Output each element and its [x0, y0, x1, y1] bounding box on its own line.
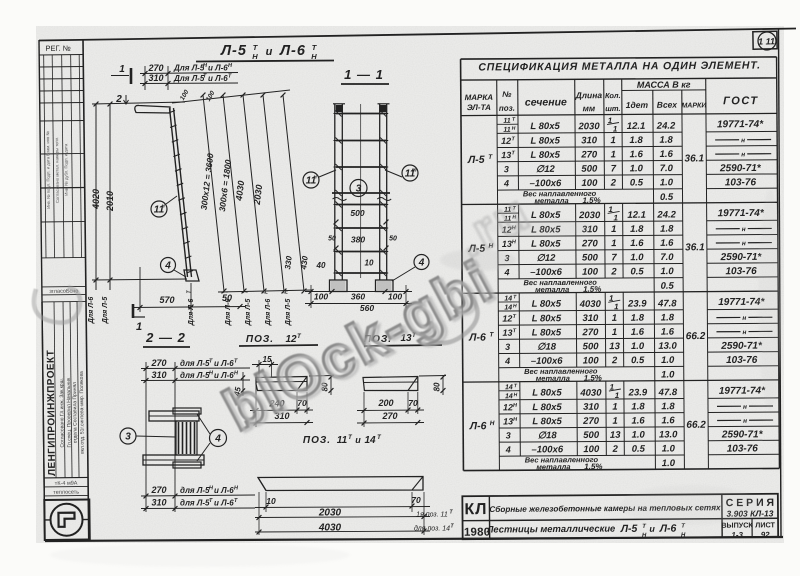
svg-text:для Л-5: для Л-5 [180, 359, 210, 368]
svg-text:1.5%: 1.5% [584, 462, 602, 471]
svg-text:для Л-5: для Л-5 [180, 486, 210, 495]
svg-text:отдела Составила Принял: отдела Составила Принял [72, 382, 79, 444]
svg-text:1.8: 1.8 [629, 135, 643, 146]
svg-text:500: 500 [582, 252, 599, 263]
svg-text:70: 70 [408, 398, 418, 408]
svg-text:11: 11 [503, 127, 510, 134]
svg-text:12: 12 [501, 136, 511, 146]
svg-text:Н: Н [514, 392, 518, 398]
svg-text:103-76: 103-76 [725, 177, 757, 188]
svg-text:360: 360 [351, 292, 365, 302]
svg-text:12.1: 12.1 [627, 210, 646, 221]
svg-text:и Л-6: и Л-6 [208, 74, 228, 83]
svg-text:сечение: сечение [525, 96, 567, 108]
svg-text:Н: Н [642, 533, 647, 539]
svg-text:и: и [649, 524, 655, 534]
svg-text:L 80х5: L 80х5 [530, 136, 560, 147]
svg-text:1.0: 1.0 [631, 341, 645, 352]
svg-text:Н: Н [512, 126, 516, 132]
svg-text:310: 310 [582, 313, 599, 324]
svg-text:270: 270 [150, 485, 166, 495]
svg-text:МАРКИ: МАРКИ [681, 102, 707, 109]
svg-text:металла: металла [536, 462, 570, 471]
svg-text:–100х6: –100х6 [531, 444, 563, 455]
svg-text:330: 330 [283, 255, 294, 270]
svg-text:1: 1 [611, 149, 616, 160]
svg-text:Для Л-6: Для Л-6 [188, 299, 195, 327]
svg-text:2590-71*: 2590-71* [720, 252, 763, 263]
svg-text:1.0: 1.0 [660, 266, 674, 277]
svg-text:ГОСТ: ГОСТ [723, 95, 759, 107]
svg-text:100: 100 [583, 355, 600, 366]
svg-text:14: 14 [504, 295, 512, 302]
svg-text:н: н [742, 240, 746, 247]
svg-text:теплосеть: теплосеть [53, 490, 79, 496]
svg-text:1: 1 [613, 125, 618, 134]
svg-text:1.8: 1.8 [661, 401, 675, 412]
svg-text:7: 7 [611, 163, 617, 174]
svg-text:для поз. 14: для поз. 14 [414, 525, 450, 533]
svg-text:ПОЗ.: ПОЗ. [246, 334, 274, 345]
svg-text:L 80х5: L 80х5 [532, 416, 562, 427]
svg-text:∅18: ∅18 [537, 342, 557, 353]
svg-text:270: 270 [581, 238, 599, 249]
svg-text:50: 50 [328, 236, 336, 243]
svg-text:7: 7 [611, 252, 617, 263]
svg-text:L 80х5: L 80х5 [532, 402, 562, 413]
svg-text:310: 310 [151, 370, 166, 380]
svg-text:н: н [743, 418, 747, 425]
svg-text:1: 1 [613, 213, 618, 222]
svg-text:36.1: 36.1 [685, 242, 705, 253]
svg-text:7.0: 7.0 [660, 252, 674, 263]
svg-text:Н: Н [513, 303, 517, 309]
svg-text:4030: 4030 [579, 388, 602, 399]
svg-text:500: 500 [581, 164, 598, 175]
svg-text:2030: 2030 [318, 508, 342, 519]
svg-text:50: 50 [222, 293, 232, 303]
svg-text:–100х6: –100х6 [531, 356, 563, 367]
svg-text:13: 13 [610, 430, 621, 441]
svg-text:–100х6: –100х6 [530, 178, 562, 189]
svg-text:36.1: 36.1 [684, 153, 704, 164]
svg-text:1.6: 1.6 [660, 238, 674, 249]
svg-text:1: 1 [612, 327, 617, 338]
svg-text:СПЕЦИФИКАЦИЯ МЕТАЛЛА НА ОД: СПЕЦИФИКАЦИЯ МЕТАЛЛА НА ОДИН ЭЛЕМЕНТ. [478, 60, 761, 74]
svg-text:н: н [741, 137, 745, 144]
svg-text:1.8: 1.8 [630, 224, 644, 235]
svg-text:L 80х5: L 80х5 [532, 387, 562, 398]
svg-text:1.6: 1.6 [661, 327, 675, 338]
svg-text:т: т [412, 168, 417, 174]
svg-text:L 80х5: L 80х5 [531, 239, 561, 250]
svg-text:23.9: 23.9 [628, 387, 648, 398]
svg-text:и: и [355, 435, 361, 445]
svg-text:и Л-6: и Л-6 [214, 359, 234, 368]
svg-text:Л-5: Л-5 [467, 154, 485, 166]
svg-text:430: 430 [299, 255, 310, 271]
svg-text:Л-6: Л-6 [469, 420, 487, 432]
svg-text:МАРКА: МАРКА [465, 93, 494, 102]
svg-text:Н: Н [252, 52, 258, 61]
svg-text:0.5: 0.5 [632, 444, 646, 455]
svg-text:2030: 2030 [578, 210, 601, 221]
svg-text:Н: Н [264, 290, 270, 294]
svg-text:Н: Н [311, 52, 317, 61]
svg-text:1.6: 1.6 [661, 415, 675, 426]
svg-text:L 80х5: L 80х5 [530, 121, 560, 132]
svg-text:1: 1 [612, 313, 617, 324]
svg-text:мм: мм [583, 103, 596, 113]
svg-text:4: 4 [504, 267, 510, 277]
svg-text:7.0: 7.0 [660, 163, 674, 174]
svg-text:500: 500 [583, 430, 600, 441]
svg-text:1.8: 1.8 [661, 312, 675, 323]
svg-text:1.6: 1.6 [630, 149, 644, 160]
svg-text:13: 13 [609, 341, 620, 352]
svg-text:1: 1 [119, 64, 125, 75]
svg-text:0.5: 0.5 [630, 266, 644, 277]
svg-text:н: н [743, 404, 747, 411]
svg-text:310: 310 [148, 73, 163, 83]
svg-text:L 80х5: L 80х5 [532, 299, 562, 310]
svg-text:Согласовано метал. камеры тепл: Согласовано метал. камеры тепл. [54, 137, 60, 203]
svg-text:19771-74*: 19771-74* [719, 385, 766, 396]
svg-text:1.8: 1.8 [660, 224, 674, 235]
svg-text:14: 14 [505, 384, 513, 391]
svg-text:0.5: 0.5 [630, 177, 644, 188]
svg-text:4030: 4030 [579, 299, 602, 310]
svg-text:ЛИСТ: ЛИСТ [755, 520, 775, 529]
svg-text:1.0: 1.0 [630, 252, 644, 263]
svg-text:50: 50 [389, 236, 397, 243]
svg-text:3: 3 [504, 164, 509, 174]
svg-text:для Л-5: для Л-5 [180, 499, 210, 508]
svg-text:103-76: 103-76 [727, 443, 759, 454]
svg-text:1.0: 1.0 [662, 458, 676, 469]
svg-text:270: 270 [150, 358, 166, 368]
svg-text:270: 270 [381, 411, 397, 421]
svg-text:0.5: 0.5 [631, 355, 645, 366]
svg-text:310: 310 [151, 498, 166, 508]
svg-text:и Л-6: и Л-6 [214, 499, 234, 508]
svg-text:14: 14 [505, 393, 513, 400]
svg-text:1дет: 1дет [626, 100, 649, 110]
svg-text:380: 380 [351, 235, 365, 245]
svg-text:4: 4 [164, 261, 171, 272]
svg-text:1.6: 1.6 [631, 415, 645, 426]
svg-text:103-76: 103-76 [726, 355, 758, 366]
svg-text:2590-71*: 2590-71* [721, 429, 764, 440]
svg-text:13: 13 [501, 150, 511, 160]
svg-text:1: 1 [612, 416, 617, 427]
svg-text:80: 80 [433, 382, 442, 391]
svg-text:1.6: 1.6 [630, 238, 644, 249]
svg-text:1.0: 1.0 [661, 355, 675, 366]
svg-text:4030: 4030 [318, 523, 342, 534]
svg-text:н: н [742, 315, 746, 322]
svg-text:1.0: 1.0 [630, 163, 644, 174]
svg-text:Н: Н [681, 532, 686, 538]
svg-text:Для Л-5: Для Л-5 [173, 74, 205, 83]
svg-text:270: 270 [582, 416, 600, 427]
svg-text:1: 1 [611, 238, 616, 249]
svg-text:500: 500 [583, 341, 600, 352]
svg-text:3: 3 [505, 342, 510, 352]
svg-text:11: 11 [337, 435, 348, 446]
svg-text:Для Л-5: Для Л-5 [173, 64, 205, 73]
svg-text:570: 570 [159, 295, 174, 305]
svg-text:вкл.отд. 51г.синтева-ммр. Поля: вкл.отд. 51г.синтева-ммр. Полякова [79, 371, 86, 454]
svg-text:L 80х5: L 80х5 [532, 313, 562, 324]
svg-text:12: 12 [502, 314, 512, 324]
svg-text:1: 1 [612, 402, 617, 413]
svg-text:270: 270 [580, 149, 598, 160]
svg-text:L 80х5: L 80х5 [532, 327, 562, 338]
svg-text:0.5: 0.5 [660, 192, 674, 203]
svg-text:∅18: ∅18 [538, 430, 558, 441]
svg-text:4: 4 [504, 356, 510, 366]
svg-text:3: 3 [356, 184, 362, 195]
svg-text:92: 92 [761, 530, 771, 539]
svg-text:–100х6: –100х6 [530, 267, 562, 278]
svg-text:Н: Н [284, 290, 290, 294]
svg-text:2590-71*: 2590-71* [719, 163, 762, 174]
svg-text:23.9: 23.9 [627, 299, 647, 310]
svg-text:Всех: Всех [657, 100, 679, 110]
svg-text:Кол.: Кол. [605, 91, 621, 100]
svg-text:14: 14 [364, 435, 376, 446]
svg-text:1 — 1: 1 — 1 [344, 67, 384, 82]
svg-text:1.8: 1.8 [631, 401, 645, 412]
svg-text:310: 310 [583, 402, 600, 413]
svg-text:13: 13 [503, 416, 513, 426]
svg-text:1: 1 [615, 391, 620, 400]
svg-text:шт.: шт. [605, 104, 620, 113]
svg-text:1.8: 1.8 [631, 313, 645, 324]
svg-text:поз.: поз. [499, 104, 515, 113]
svg-text:4: 4 [505, 445, 511, 455]
svg-text:2: 2 [610, 178, 617, 189]
svg-text:Для Л-5: Для Л-5 [245, 299, 252, 327]
svg-text:66.2: 66.2 [686, 420, 706, 431]
svg-text:2: 2 [612, 444, 619, 455]
svg-text:Л-6: Л-6 [279, 43, 306, 59]
svg-text:Для Л-5: Для Л-5 [285, 299, 292, 327]
svg-text:1: 1 [136, 321, 142, 333]
svg-text:∅12: ∅12 [536, 253, 556, 264]
svg-text:для Л-5: для Л-5 [180, 371, 210, 380]
svg-text:3: 3 [125, 432, 131, 443]
svg-text:КЛ: КЛ [464, 501, 487, 518]
svg-text:270: 270 [147, 63, 163, 73]
svg-text:200: 200 [377, 398, 393, 408]
svg-text:100: 100 [581, 178, 598, 189]
svg-text:70: 70 [411, 495, 421, 505]
svg-text:ПОЗ.: ПОЗ. [303, 435, 331, 446]
svg-text:1.6: 1.6 [631, 327, 645, 338]
svg-text:1.0: 1.0 [660, 177, 674, 188]
svg-text:40: 40 [316, 261, 326, 270]
svg-text:66.2: 66.2 [686, 331, 706, 342]
svg-text:и Л-6: и Л-6 [208, 64, 228, 73]
svg-text:1: 1 [611, 224, 616, 235]
svg-text:19771-74*: 19771-74* [718, 208, 765, 219]
svg-text:Л-6: Л-6 [468, 332, 486, 344]
svg-text:47.8: 47.8 [657, 298, 677, 309]
svg-text:100: 100 [314, 292, 328, 302]
svg-text:47.8: 47.8 [658, 387, 678, 398]
svg-text:2030: 2030 [577, 121, 600, 132]
svg-text:24.2: 24.2 [656, 210, 676, 221]
svg-text:100: 100 [583, 444, 600, 455]
svg-text:4: 4 [418, 258, 425, 269]
svg-text:ЭЛ-ТА: ЭЛ-ТА [467, 103, 491, 112]
svg-text:2010: 2010 [105, 191, 115, 212]
svg-text:1.0: 1.0 [632, 430, 646, 441]
svg-text:и Л-6: и Л-6 [214, 486, 234, 495]
svg-text:270: 270 [582, 327, 600, 338]
svg-text:13: 13 [502, 328, 512, 338]
svg-text:Л-5: Л-5 [620, 523, 638, 535]
svg-text:Л-5: Л-5 [220, 43, 247, 59]
svg-text:103-76: 103-76 [725, 266, 757, 277]
svg-text:Для Л-6: Для Л-6 [88, 297, 95, 325]
svg-text:1: 1 [610, 135, 615, 146]
svg-text:1.0: 1.0 [662, 443, 676, 454]
svg-text:1-3: 1-3 [731, 531, 743, 540]
svg-text:Инв. № подл. Подп. и дата Взам: Инв. № подл. Подп. и дата Взам. инв № [45, 130, 51, 208]
svg-text:Для Л-5: Для Л-5 [102, 297, 109, 325]
svg-text:Н: Н [490, 420, 495, 427]
svg-text:2: 2 [611, 355, 618, 366]
svg-text:2: 2 [610, 266, 617, 277]
svg-text:тК-4 м9А: тК-4 м9А [55, 481, 78, 487]
svg-text:13.0: 13.0 [658, 341, 677, 352]
svg-text:4: 4 [214, 434, 221, 445]
svg-text:Лестницы металлические: Лестницы металлические [486, 523, 615, 535]
svg-text:12.1: 12.1 [627, 121, 646, 132]
svg-text:Длина: Длина [575, 90, 603, 100]
svg-text:1.8: 1.8 [659, 135, 673, 146]
svg-text:РЕГ. №: РЕГ. № [45, 44, 70, 53]
svg-text:и: и [266, 46, 273, 58]
svg-text:н: н [742, 226, 746, 233]
svg-text:0.5: 0.5 [661, 281, 675, 292]
svg-text:4020: 4020 [91, 189, 101, 210]
svg-text:Для Л-6: Для Л-6 [265, 299, 272, 327]
svg-text:1: 1 [614, 302, 619, 311]
svg-text:н: н [741, 151, 745, 158]
svg-text:1 11: 1 11 [758, 36, 775, 46]
svg-text:1я поз. 11: 1я поз. 11 [416, 512, 448, 519]
svg-text:3: 3 [506, 431, 511, 441]
svg-text:№: № [502, 90, 512, 99]
svg-text:19771-74*: 19771-74* [717, 119, 764, 130]
svg-text:11: 11 [503, 118, 510, 125]
svg-text:Инв. № дубл. Подп. и дата: Инв. № дубл. Подп. и дата [63, 143, 69, 195]
svg-text:10: 10 [365, 259, 374, 268]
svg-text:1.0: 1.0 [661, 369, 675, 380]
svg-text:24.2: 24.2 [656, 121, 676, 132]
svg-text:1.6: 1.6 [660, 149, 674, 160]
svg-text:2 — 2: 2 — 2 [145, 330, 186, 345]
svg-text:310: 310 [581, 135, 598, 146]
svg-text:∅12: ∅12 [536, 164, 556, 175]
svg-text:12: 12 [503, 402, 513, 412]
svg-text:100: 100 [582, 267, 599, 278]
svg-text:500: 500 [350, 208, 364, 218]
svg-text:13.0: 13.0 [659, 429, 678, 440]
svg-text:L 80х5: L 80х5 [530, 150, 560, 161]
svg-text:н: н [742, 329, 746, 336]
svg-text:2590-71*: 2590-71* [720, 341, 763, 352]
svg-text:МАССА В кг: МАССА В кг [637, 80, 691, 90]
